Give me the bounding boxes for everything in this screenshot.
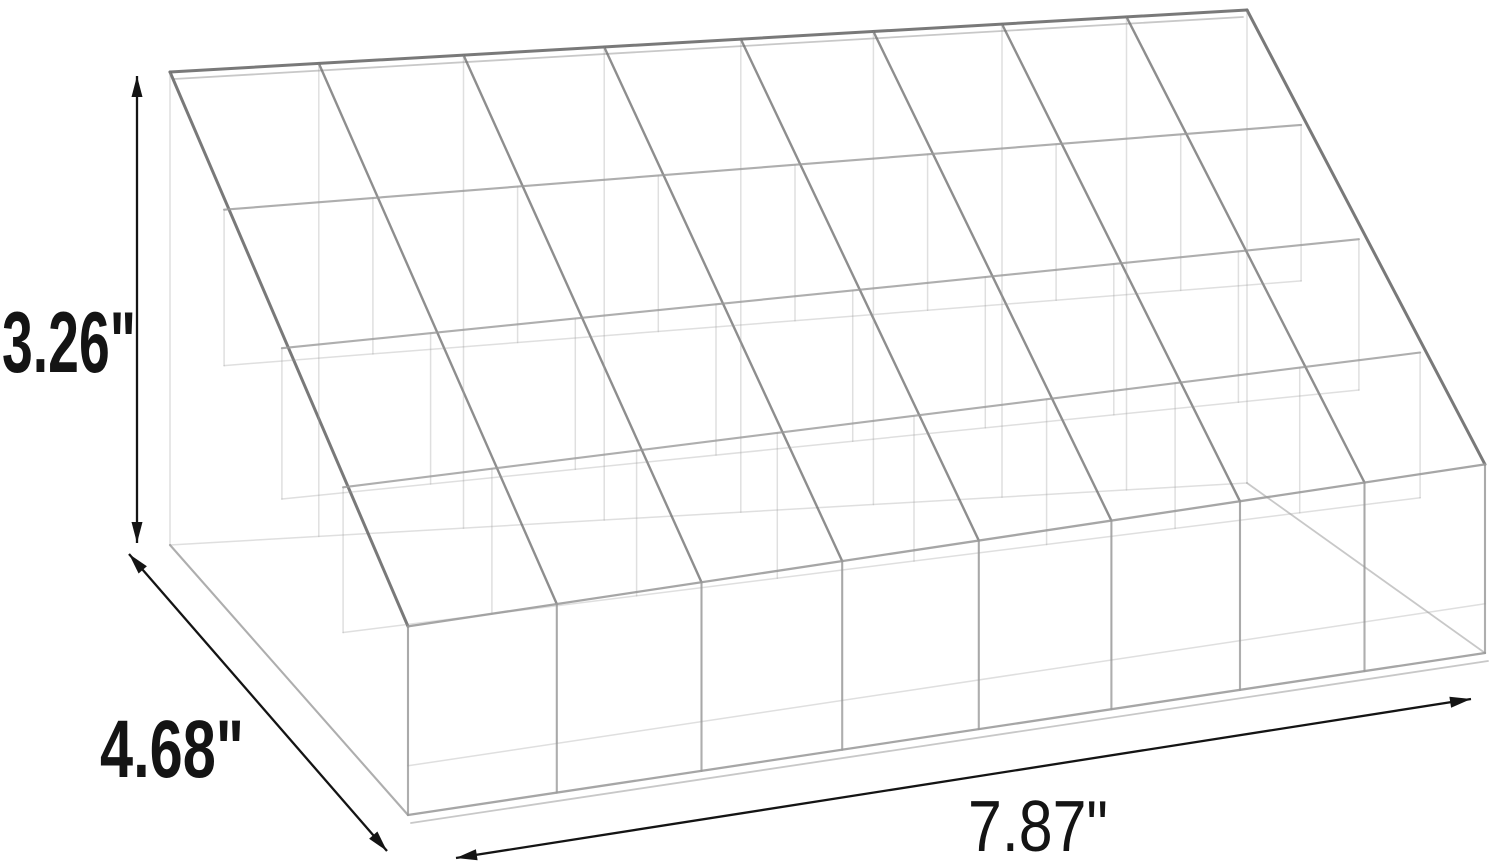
height-dimension: 3.26" — [2, 76, 143, 543]
height-dimension-label: 3.26" — [2, 295, 136, 391]
dim-height-arrowhead-2 — [132, 522, 143, 543]
depth-dimension-label: 4.68" — [100, 704, 244, 795]
depth-dimension: 4.68" — [100, 554, 387, 851]
dim-height-arrowhead-1 — [132, 76, 143, 97]
dim-width-line — [456, 699, 1471, 858]
width-dimension-label: 7.87" — [968, 787, 1108, 867]
acrylic-organizer-wireframe — [170, 10, 1488, 823]
product-diagram-canvas: 3.26" 4.68" 7.87" — [0, 0, 1500, 867]
product-dimension-diagram: 3.26" 4.68" 7.87" — [0, 0, 1500, 867]
width-dimension: 7.87" — [456, 697, 1471, 867]
dim-depth-line — [129, 554, 387, 851]
